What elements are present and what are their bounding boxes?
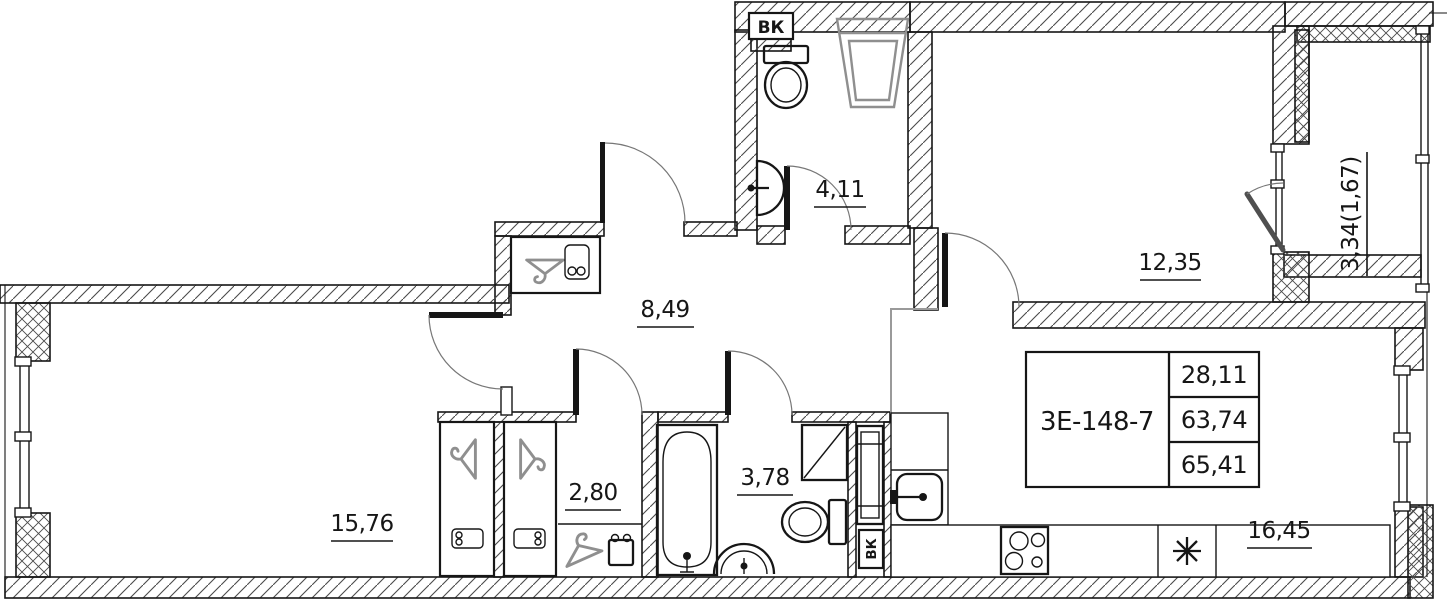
walls bbox=[0, 2, 1447, 598]
sink-icon bbox=[714, 544, 774, 574]
wall-segment bbox=[1285, 2, 1433, 26]
balcony-glazing bbox=[1416, 26, 1429, 292]
unit-number: 3Е-148-7 bbox=[1040, 407, 1154, 437]
wall-segment bbox=[845, 226, 910, 244]
area-label-balcony: 3,34(1,67) bbox=[1338, 156, 1364, 271]
toilet-icon bbox=[764, 46, 808, 108]
balcony-door-leaf bbox=[1247, 194, 1283, 250]
kitchen-counter bbox=[891, 525, 1390, 577]
wall-segment bbox=[908, 32, 932, 228]
bathtub-icon bbox=[657, 425, 717, 575]
wall-segment bbox=[757, 226, 785, 244]
title-block: 3Е-148-7 28,11 63,74 65,41 bbox=[1026, 352, 1259, 487]
area-value-2: 63,74 bbox=[1181, 406, 1247, 434]
entrance-door-leaf bbox=[600, 142, 605, 223]
wardrobe-cabinet-1 bbox=[440, 422, 494, 576]
duct-wall bbox=[848, 422, 856, 577]
entrance-door bbox=[600, 142, 685, 223]
window-living bbox=[15, 357, 31, 517]
wall-segment bbox=[5, 577, 1410, 598]
washing-machine-icon bbox=[802, 425, 847, 480]
area-label-bathroom: 3,78 bbox=[740, 465, 789, 491]
duct-label-top: ВК bbox=[758, 18, 785, 38]
window-kitchen bbox=[1394, 366, 1410, 511]
door-wardrobe-room bbox=[573, 349, 642, 415]
wall-segment bbox=[16, 513, 50, 577]
wall-segment bbox=[642, 412, 658, 577]
area-label-hall: 8,49 bbox=[640, 297, 689, 323]
toilet-icon bbox=[782, 500, 846, 544]
area-label-wc: 4,11 bbox=[815, 177, 864, 203]
wall-segment bbox=[495, 222, 604, 236]
wall-segment bbox=[1013, 302, 1425, 328]
area-label-bedroom: 12,35 bbox=[1138, 250, 1201, 276]
wall-segment bbox=[16, 303, 50, 361]
riser-unit-icon bbox=[857, 426, 883, 524]
laundry-basket-icon bbox=[609, 535, 633, 566]
wardrobe-room-furniture bbox=[557, 524, 642, 566]
balcony-door-window bbox=[1247, 144, 1284, 254]
wall-segment bbox=[910, 2, 1285, 32]
hall-closet bbox=[511, 237, 600, 293]
door-living-room bbox=[429, 312, 503, 389]
wall-segment bbox=[494, 422, 504, 577]
wall-segment bbox=[1273, 252, 1309, 302]
wall-stub bbox=[501, 387, 512, 415]
door-bathroom bbox=[725, 351, 792, 415]
entrance-door-arc bbox=[605, 143, 685, 223]
area-value-3: 65,41 bbox=[1181, 451, 1247, 479]
duct-label-bottom: ВК bbox=[864, 538, 880, 559]
zone-boundary-line bbox=[891, 309, 938, 414]
shower-icon bbox=[837, 19, 908, 107]
wall-segment bbox=[1295, 30, 1309, 142]
hanger-icon bbox=[557, 529, 602, 566]
floor-plan: 4,11 12,35 3,34(1,67) 8,49 2,80 3,78 15,… bbox=[0, 0, 1447, 600]
wall-segment bbox=[735, 30, 757, 230]
wall-segment bbox=[792, 412, 890, 422]
wall-segment bbox=[0, 285, 509, 303]
wall-segment bbox=[1395, 328, 1423, 370]
area-label-living: 15,76 bbox=[330, 511, 393, 537]
wall-segment bbox=[1408, 505, 1433, 598]
wall-segment bbox=[1297, 26, 1430, 42]
area-label-wardrobe: 2,80 bbox=[568, 480, 617, 506]
wall-segment bbox=[658, 412, 728, 422]
area-value-1: 28,11 bbox=[1181, 361, 1247, 389]
wardrobe-cabinet-2 bbox=[504, 422, 556, 576]
area-label-kitchen: 16,45 bbox=[1247, 518, 1310, 544]
wall-segment bbox=[684, 222, 737, 236]
wall-segment bbox=[914, 228, 938, 310]
door-bedroom bbox=[942, 233, 1019, 307]
floor-plan-drawing: 4,11 12,35 3,34(1,67) 8,49 2,80 3,78 15,… bbox=[0, 0, 1447, 600]
